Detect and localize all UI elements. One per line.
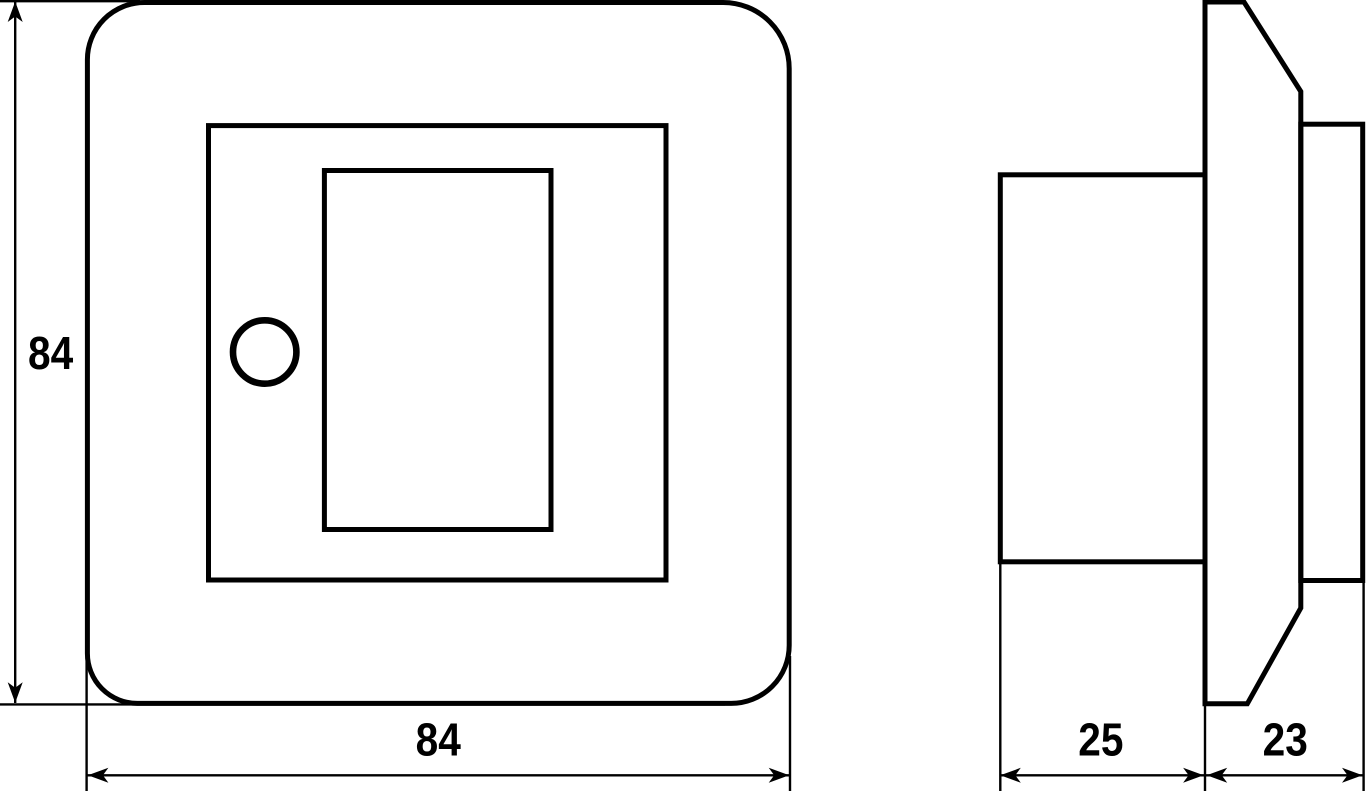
svg-text:84: 84 xyxy=(416,714,462,766)
svg-text:84: 84 xyxy=(28,327,74,379)
svg-text:23: 23 xyxy=(1263,714,1308,766)
svg-text:25: 25 xyxy=(1078,714,1123,766)
